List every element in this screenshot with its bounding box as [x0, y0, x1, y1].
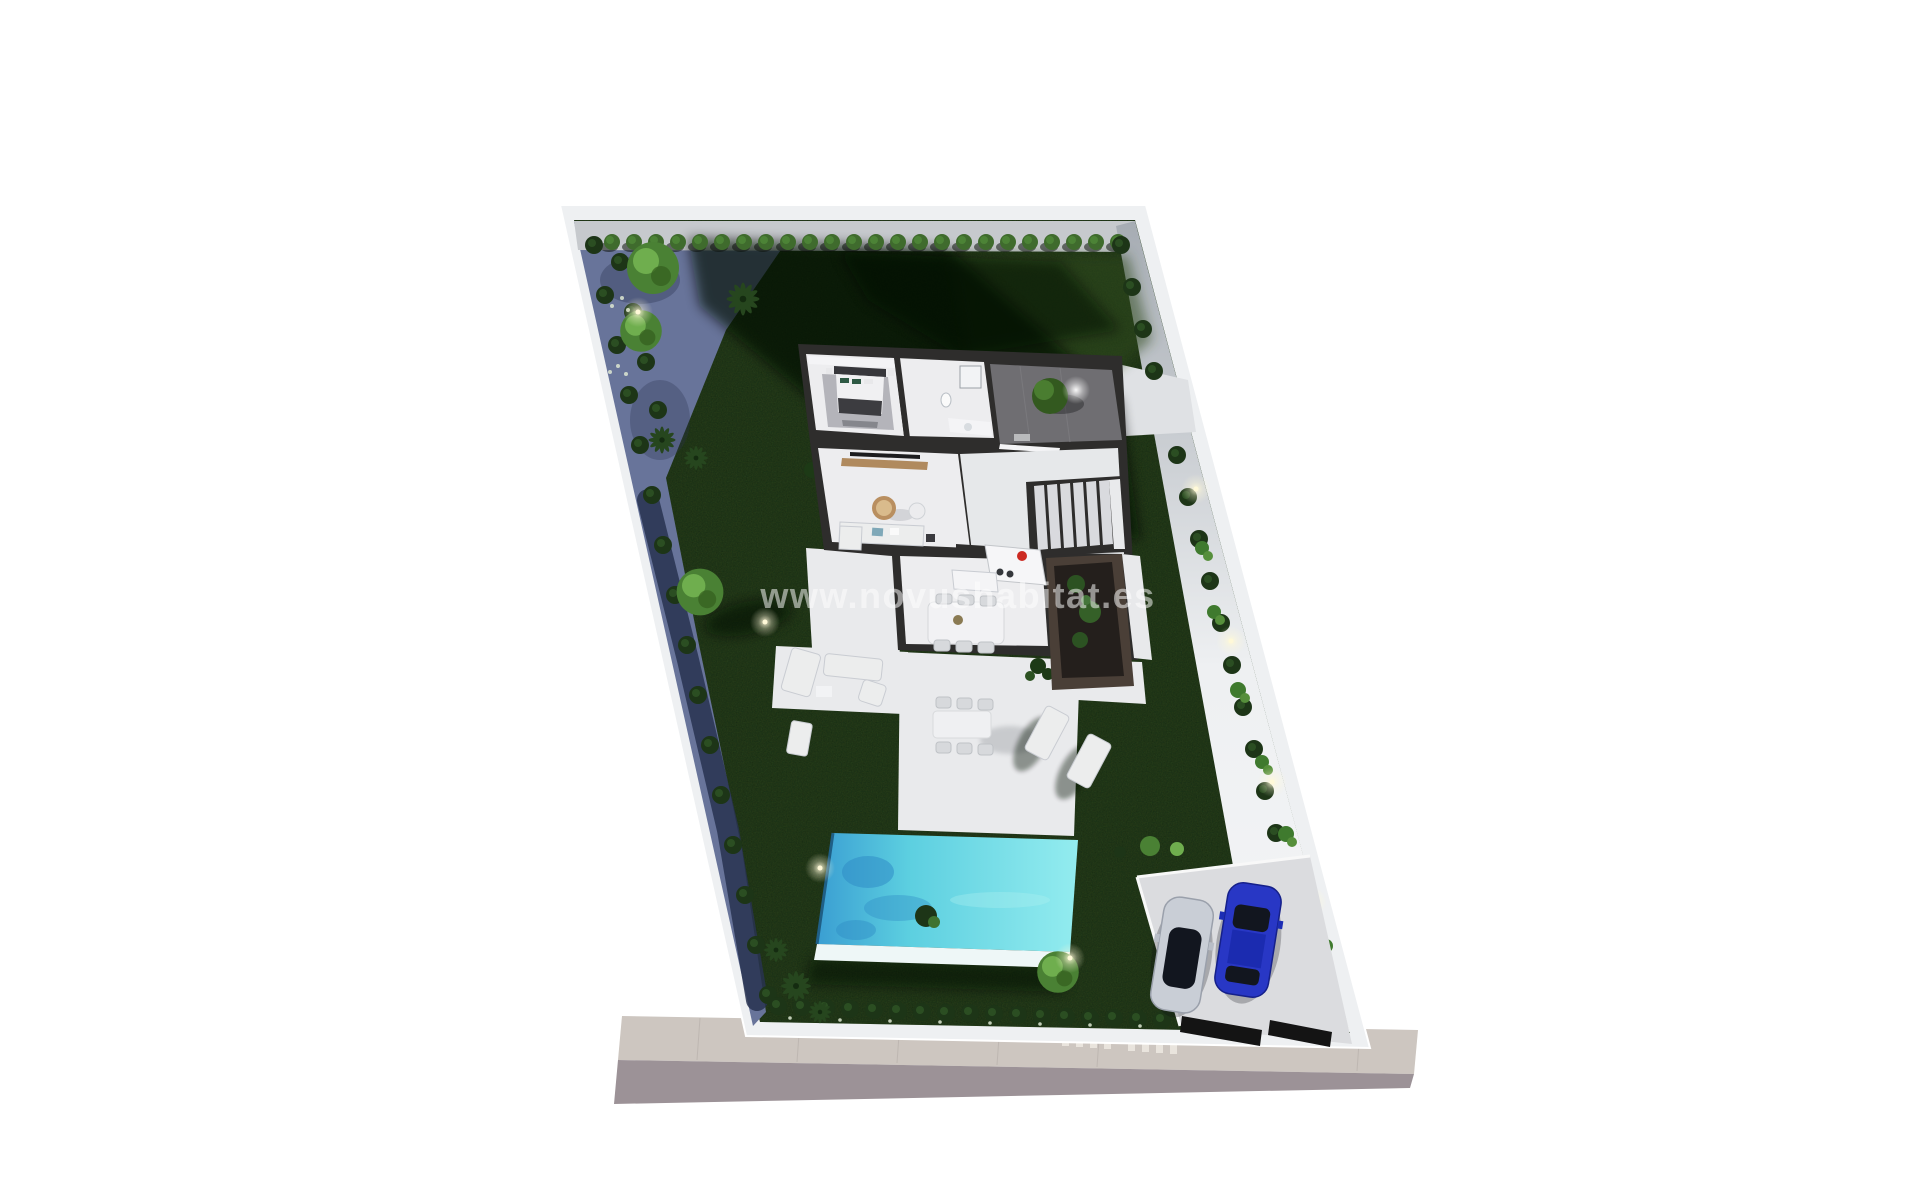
courtyard-light: [1062, 376, 1090, 404]
outdoor-chair: [936, 697, 951, 708]
bush: [928, 916, 940, 928]
car-roof: [1227, 929, 1266, 968]
basin: [964, 423, 972, 431]
outdoor-table: [933, 711, 991, 738]
outdoor-chair: [957, 743, 972, 754]
dining-chair: [978, 642, 994, 653]
door-mat: [1014, 434, 1030, 441]
outdoor-chair: [957, 698, 972, 709]
bush: [1140, 836, 1160, 856]
bed-throw: [838, 398, 882, 416]
hall: [956, 448, 1126, 556]
pillow: [852, 379, 861, 384]
white-cushion: [890, 528, 899, 535]
side-table: [926, 534, 935, 542]
bush: [1170, 842, 1184, 856]
tree: [677, 569, 724, 616]
courtyard-tree-highlight: [1034, 380, 1054, 400]
cooktop-pot: [1017, 551, 1027, 561]
watermark-text: www.novushabitat.es: [759, 575, 1155, 616]
nightstand: [888, 370, 894, 376]
coffee-table-top: [876, 500, 892, 516]
pool-highlight: [950, 892, 1050, 908]
table-centerpiece: [953, 615, 963, 625]
pool-ripple: [836, 920, 876, 940]
outdoor-chair: [936, 742, 951, 753]
outdoor-chair: [978, 699, 993, 710]
bush: [1114, 846, 1126, 858]
dining-chair: [956, 641, 972, 652]
tree: [627, 242, 679, 294]
shower: [960, 366, 981, 388]
swimming-pool: [806, 833, 1078, 992]
bathroom: [894, 356, 994, 438]
site-plan-render: www.novushabitat.es: [0, 0, 1920, 1200]
blue-cushion: [872, 528, 884, 537]
entrance-courtyard: [990, 364, 1122, 453]
nightstand: [826, 368, 832, 374]
outdoor-chair: [978, 744, 993, 755]
pillow: [840, 378, 849, 383]
pillow: [864, 379, 873, 384]
dining-chair: [934, 640, 950, 651]
sofa-chaise: [839, 526, 862, 550]
pouf: [909, 503, 925, 519]
villa-plot-scene: www.novushabitat.es: [0, 0, 1920, 1200]
side-table: [816, 686, 832, 697]
bedroom: [806, 354, 904, 436]
pool-ripple: [842, 856, 894, 888]
toilet: [941, 393, 951, 407]
living-room: [818, 448, 970, 550]
